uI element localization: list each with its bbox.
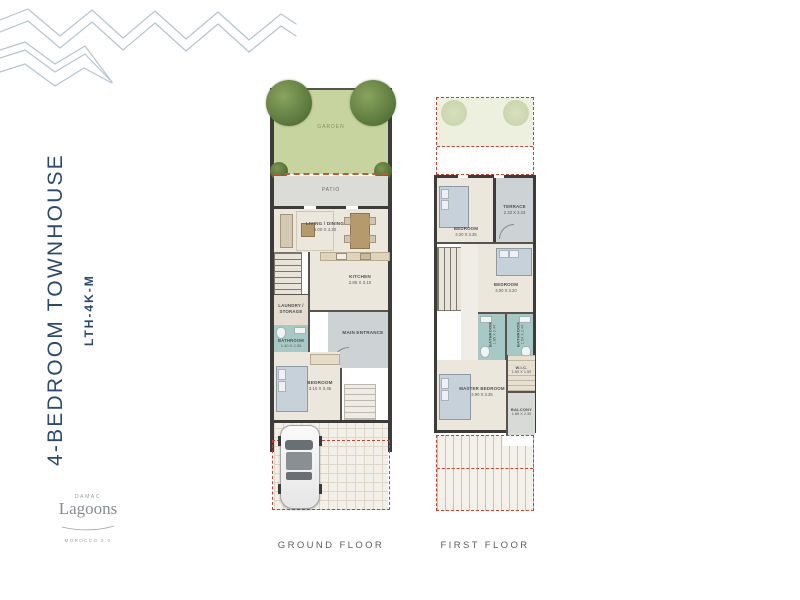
gf-partition-wall — [340, 368, 342, 420]
pillow — [509, 250, 519, 258]
first-floor-caption: FIRST FLOOR — [414, 540, 556, 551]
laundry-storage-room: LAUNDRY / STORAGE — [274, 295, 308, 325]
pillow — [278, 369, 286, 380]
first-floor-plan: BEDROOM 3.20 X 3.35 TERRACE 2.33 X 3.33 … — [434, 97, 536, 512]
kitchen-dims: 2.85 X 3.10 — [338, 280, 382, 285]
kitchen-stove — [360, 253, 371, 260]
ff-bedroom-front-room: BEDROOM 3.20 X 3.35 — [437, 178, 493, 242]
bed — [439, 186, 469, 228]
sofa — [280, 214, 293, 248]
laundry-storage-label: LAUNDRY / STORAGE — [275, 303, 307, 314]
ff-bathroom-a-labelwrap: BATHROOM 1.85 X 2.44 — [488, 315, 497, 355]
entry-steps — [344, 384, 376, 420]
garden-area: GARDEN — [274, 90, 388, 174]
car-wheel — [278, 484, 281, 494]
master-bedroom-label: MASTER BEDROOM — [459, 386, 505, 392]
wic-dims: 1.60 X 1.50 — [508, 370, 535, 374]
chair — [344, 235, 351, 243]
gf-staircase — [274, 252, 302, 297]
ff-bedroom-mid-room: BEDROOM 3.00 X 3.20 — [478, 244, 533, 312]
gf-partition-wall — [274, 294, 308, 295]
ff-staircase — [437, 247, 462, 311]
ff-garden-outline-dashed — [436, 97, 534, 175]
patio-area: PATIO — [274, 176, 388, 206]
gf-partition-wall — [308, 310, 388, 312]
pillow — [441, 390, 449, 401]
balcony-dims: 1.85 X 2.30 — [508, 412, 535, 416]
ff-bathroom-a-dims: 1.85 X 2.44 — [493, 315, 497, 355]
kitchen-counter — [320, 252, 390, 261]
main-entrance-label: MAIN ENTRANCE — [342, 330, 384, 336]
ff-wall-bottom — [434, 430, 506, 433]
master-bedroom-dims: 3.90 X 3.35 — [459, 392, 505, 397]
brand-logo-lagoons: Lagoons — [38, 500, 138, 518]
ff-bathroom-b-labelwrap: BATHROOM 1.54 X 2.44 — [516, 315, 525, 355]
brand-logo-tagline: MOROCCO 2.0 — [38, 538, 138, 543]
terrace-dims: 2.33 X 3.33 — [497, 210, 532, 215]
dining-table — [350, 213, 370, 249]
tree-icon — [266, 80, 312, 126]
pillow — [278, 381, 286, 392]
bed — [496, 248, 532, 276]
ff-bedroom-mid-dims: 3.00 X 3.20 — [484, 288, 528, 293]
pergola-roof-area — [436, 435, 534, 511]
car-wheel — [319, 484, 322, 494]
sink — [294, 327, 306, 334]
bed — [439, 374, 471, 420]
ff-corridor — [461, 244, 478, 360]
door-arc-icon — [499, 224, 514, 239]
car-windshield — [285, 440, 313, 450]
gf-bedroom-dims: 3.10 X 3.45 — [300, 386, 340, 391]
living-dining-room: LIVING / DINING 5.00 X 4.20 — [274, 209, 388, 252]
car-rear-window — [286, 472, 312, 480]
tree-ghost-icon — [503, 100, 529, 126]
tree-icon — [350, 80, 396, 126]
ff-bedroom-front-dims: 3.20 X 3.35 — [445, 232, 487, 237]
chair — [369, 235, 376, 243]
car-wheel — [278, 436, 281, 446]
pillow — [499, 250, 509, 258]
page-title: 4-BEDROOM TOWNHOUSE — [44, 148, 74, 472]
balcony-area: BALCONY 1.85 X 2.30 — [506, 391, 535, 435]
car-wheel — [319, 436, 322, 446]
pergola-dashed-line — [437, 468, 533, 469]
kitchen-room: KITCHEN 2.85 X 3.10 — [310, 252, 388, 310]
pillow — [441, 200, 449, 210]
gf-bedroom-room: BEDROOM 3.10 X 3.45 — [274, 352, 340, 420]
living-dining-label: LIVING / DINING — [300, 221, 350, 227]
ff-bathroom-b-dims: 1.54 X 2.44 — [521, 315, 525, 355]
tree-ghost-icon — [441, 100, 467, 126]
gf-bathroom-dims: 1.40 X 2.35 — [275, 343, 307, 348]
car-roof — [286, 452, 312, 470]
patio-label: PATIO — [274, 187, 388, 193]
living-dining-dims: 5.00 X 4.20 — [300, 227, 350, 232]
car-icon — [280, 425, 320, 509]
unit-code: LTH-4K-M — [82, 148, 100, 472]
chair — [369, 217, 376, 225]
garden-label: GARDEN — [274, 124, 388, 130]
ff-bathroom-b-room: BATHROOM 1.54 X 2.44 — [507, 314, 533, 360]
ff-garden-ghost — [437, 98, 533, 147]
wic-room: W.I.C. 1.60 X 1.50 — [506, 355, 535, 391]
closet — [310, 354, 340, 365]
brand-logo: DAMAC Lagoons MOROCCO 2.0 — [38, 494, 138, 543]
kitchen-sink — [336, 253, 347, 260]
logo-swoosh — [60, 525, 116, 531]
pillow — [441, 378, 449, 389]
terrace-area: TERRACE 2.33 X 3.33 — [496, 178, 533, 242]
ground-floor-caption: GROUND FLOOR — [252, 540, 410, 551]
garden-boundary-dashed — [274, 173, 388, 175]
ff-bathroom-a-room: BATHROOM 1.85 X 2.44 — [478, 314, 505, 360]
pillow — [441, 189, 449, 199]
pergola-notch — [503, 436, 533, 446]
gf-bathroom-room: BATHROOM 1.40 X 2.35 — [274, 325, 308, 352]
gf-wall-right — [388, 88, 392, 452]
ground-floor-plan: GARDEN PATIO LIVING / DINING 5.00 X 4.20… — [270, 88, 392, 512]
master-bedroom-room: MASTER BEDROOM 3.90 X 3.35 — [437, 360, 506, 432]
wave-pattern-decoration — [0, 4, 300, 99]
